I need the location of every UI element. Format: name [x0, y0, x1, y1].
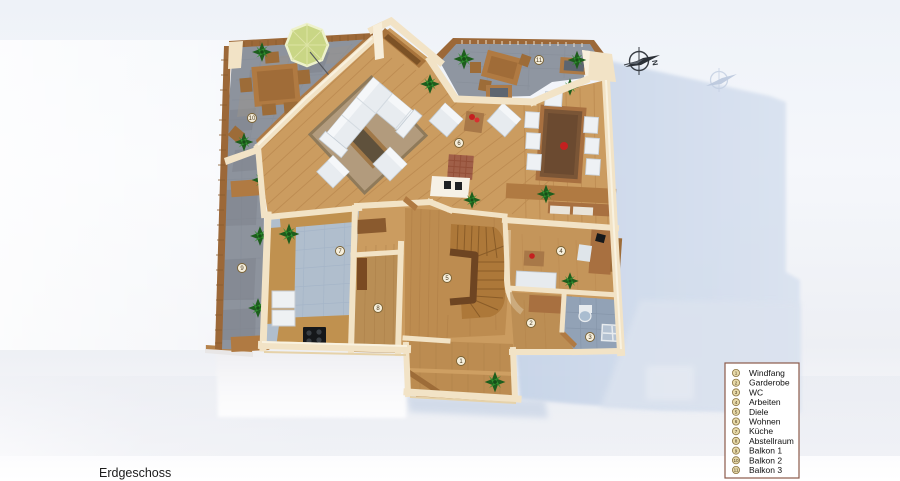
- svg-text:Wohnen: Wohnen: [749, 417, 781, 427]
- svg-text:10: 10: [733, 458, 739, 463]
- svg-text:3: 3: [735, 390, 738, 395]
- svg-text:11: 11: [734, 468, 739, 473]
- svg-text:6: 6: [735, 419, 738, 424]
- svg-text:7: 7: [735, 429, 738, 434]
- svg-text:11: 11: [536, 58, 543, 64]
- svg-text:Balkon 1: Balkon 1: [749, 446, 782, 456]
- svg-text:WC: WC: [749, 387, 763, 397]
- svg-text:Balkon 3: Balkon 3: [749, 465, 782, 475]
- svg-text:2: 2: [735, 380, 738, 385]
- svg-text:5: 5: [735, 410, 738, 415]
- svg-text:Arbeiten: Arbeiten: [749, 397, 781, 407]
- svg-text:10: 10: [249, 116, 256, 122]
- svg-text:8: 8: [735, 439, 738, 444]
- svg-text:Diele: Diele: [749, 407, 769, 417]
- svg-text:Garderobe: Garderobe: [749, 378, 790, 388]
- svg-text:1: 1: [735, 371, 738, 376]
- svg-text:4: 4: [735, 400, 738, 405]
- svg-text:Küche: Küche: [749, 426, 773, 436]
- svg-text:9: 9: [735, 448, 738, 453]
- svg-text:Balkon 2: Balkon 2: [749, 455, 782, 465]
- svg-text:Erdgeschoss: Erdgeschoss: [99, 466, 171, 480]
- svg-text:Abstellraum: Abstellraum: [749, 436, 794, 446]
- svg-text:Windfang: Windfang: [749, 368, 785, 378]
